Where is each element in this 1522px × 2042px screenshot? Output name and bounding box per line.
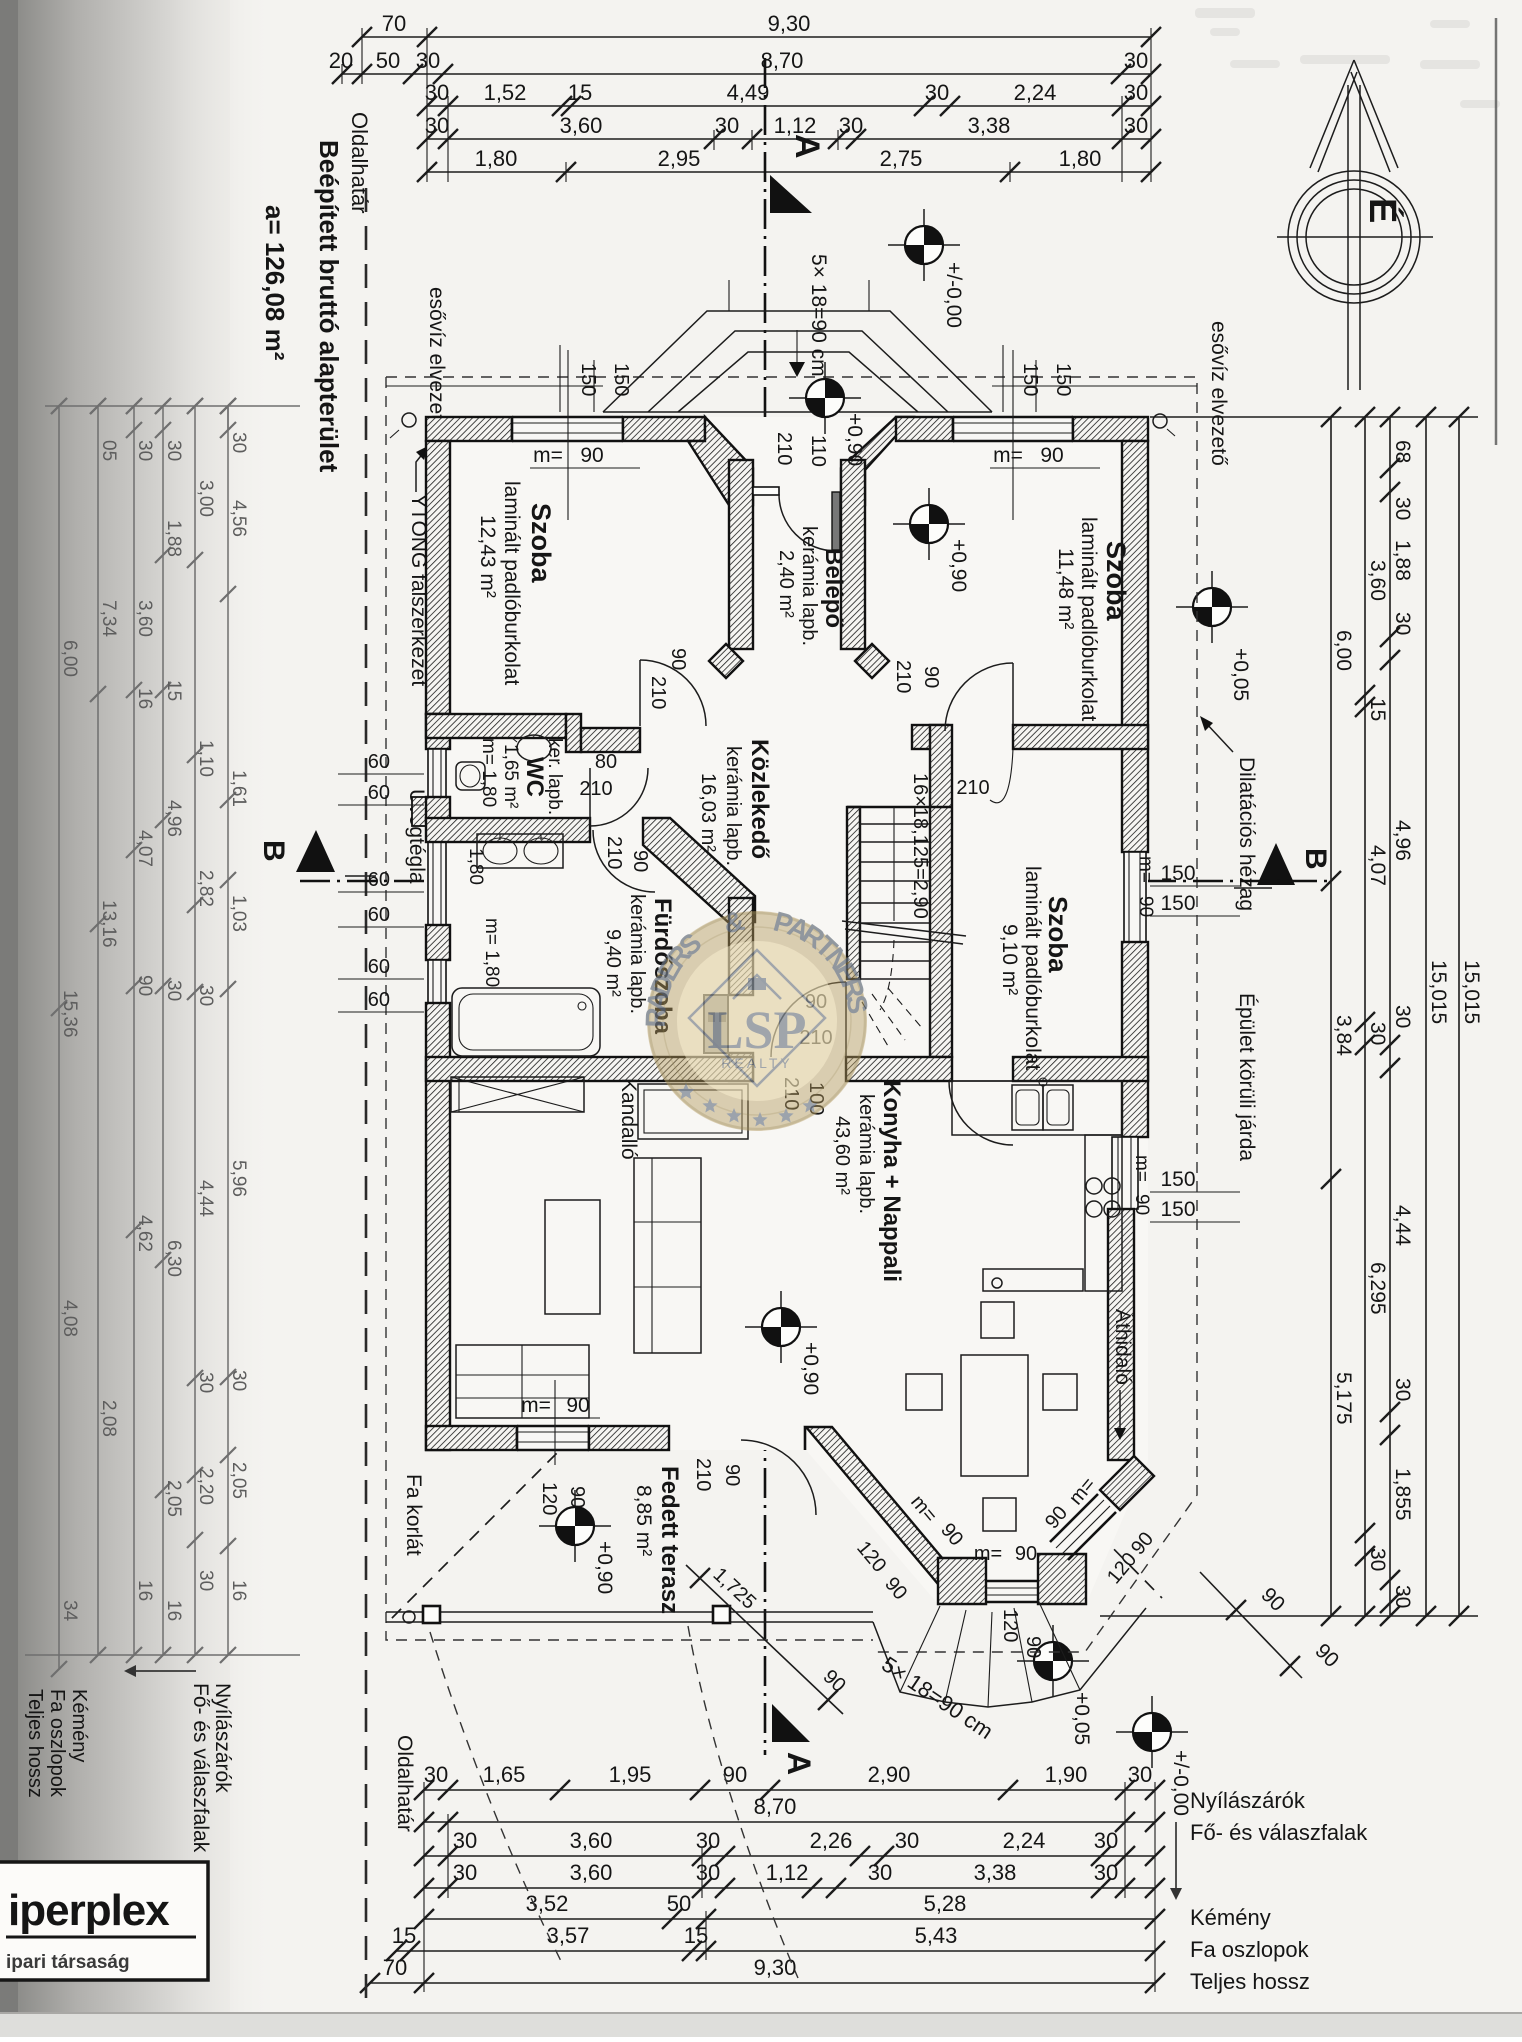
svg-text:20: 20 [329, 48, 353, 73]
svg-text:60: 60 [368, 751, 390, 773]
svg-text:150: 150 [1019, 363, 1041, 396]
svg-text:kerámia lapb.: kerámia lapb. [855, 1094, 877, 1214]
svg-text:Oldalhatár: Oldalhatár [393, 1735, 416, 1832]
svg-text:+/-0,00: +/-0,00 [942, 262, 965, 328]
svg-text:15: 15 [1366, 698, 1389, 721]
svg-text:B: B [1299, 848, 1332, 870]
svg-text:90: 90 [1022, 1636, 1044, 1658]
svg-text:13,16: 13,16 [98, 900, 119, 948]
svg-text:m= 1,80: m= 1,80 [481, 918, 502, 987]
svg-text:Szoba: Szoba [1043, 896, 1073, 973]
svg-text:8,85 m²: 8,85 m² [632, 1485, 655, 1556]
svg-text:30: 30 [1391, 1585, 1414, 1608]
svg-text:3,38: 3,38 [968, 113, 1011, 138]
svg-text:REALTY: REALTY [721, 1055, 792, 1071]
svg-text:16: 16 [163, 1600, 184, 1621]
svg-text:16,03 m²: 16,03 m² [697, 773, 719, 852]
svg-text:1,80: 1,80 [465, 848, 486, 885]
svg-text:4,07: 4,07 [1366, 845, 1389, 886]
svg-text:3,38: 3,38 [974, 1860, 1017, 1885]
svg-text:60: 60 [368, 989, 390, 1011]
svg-text:laminált padlóburkolat: laminált padlóburkolat [500, 481, 523, 685]
svg-text:Nyílászárók: Nyílászárók [211, 1683, 234, 1793]
svg-text:30: 30 [228, 1370, 249, 1391]
svg-text:15: 15 [392, 1923, 416, 1948]
svg-text:15: 15 [163, 680, 184, 701]
svg-text:150: 150 [610, 363, 632, 396]
svg-text:30: 30 [1124, 113, 1148, 138]
svg-text:Épület körüli járda: Épület körüli járda [1235, 993, 1258, 1161]
svg-text:3,52: 3,52 [526, 1891, 569, 1916]
svg-text:30: 30 [195, 1570, 216, 1591]
svg-text:30: 30 [868, 1860, 892, 1885]
svg-text:70: 70 [382, 11, 406, 36]
svg-text:30: 30 [228, 432, 249, 453]
svg-text:4,07: 4,07 [134, 830, 155, 867]
svg-text:5,96: 5,96 [228, 1160, 249, 1197]
svg-text:2,05: 2,05 [228, 1462, 249, 1499]
svg-text:4,44: 4,44 [195, 1180, 216, 1217]
svg-text:1,90: 1,90 [1045, 1762, 1088, 1787]
svg-text:WC: WC [521, 757, 548, 797]
svg-text:30: 30 [1094, 1860, 1118, 1885]
svg-text:+0,90: +0,90 [947, 539, 970, 592]
svg-text:laminált padlóburkolat: laminált padlóburkolat [1021, 866, 1044, 1070]
svg-text:5,28: 5,28 [924, 1891, 967, 1916]
svg-text:4,56: 4,56 [228, 500, 249, 537]
svg-text:210: 210 [892, 660, 914, 693]
svg-text:110: 110 [807, 435, 829, 467]
svg-text:Kémény: Kémény [68, 1689, 90, 1762]
svg-text:30: 30 [1391, 497, 1414, 520]
svg-text:Szoba: Szoba [526, 503, 556, 583]
svg-text:3,00: 3,00 [195, 480, 216, 517]
svg-text:90: 90 [566, 1394, 589, 1417]
svg-text:150: 150 [1160, 892, 1195, 915]
svg-text:LSP: LSP [707, 1000, 806, 1060]
svg-text:6,00: 6,00 [59, 640, 80, 677]
svg-text:210: 210 [647, 676, 669, 709]
svg-text:Fedett terasz: Fedett terasz [656, 1466, 683, 1614]
svg-text:30: 30 [1391, 1005, 1414, 1028]
svg-text:2,40 m²: 2,40 m² [775, 550, 797, 618]
svg-text:60: 60 [368, 956, 390, 978]
svg-text:210: 210 [579, 778, 612, 800]
svg-text:30: 30 [696, 1860, 720, 1885]
svg-text:30: 30 [453, 1828, 477, 1853]
svg-text:90: 90 [1131, 1194, 1152, 1215]
svg-text:É: É [1361, 198, 1405, 223]
svg-text:30: 30 [453, 1860, 477, 1885]
svg-text:6,295: 6,295 [1366, 1262, 1389, 1315]
svg-text:16: 16 [228, 1580, 249, 1601]
svg-text:30: 30 [425, 80, 449, 105]
svg-text:30: 30 [163, 980, 184, 1001]
svg-text:90: 90 [1015, 1543, 1037, 1565]
svg-text:60: 60 [368, 869, 390, 891]
svg-text:90: 90 [920, 666, 942, 688]
svg-text:Fa oszlopok: Fa oszlopok [46, 1689, 68, 1798]
svg-text:4,08: 4,08 [59, 1300, 80, 1337]
svg-text:30: 30 [416, 48, 440, 73]
svg-text:8,70: 8,70 [761, 48, 804, 73]
svg-text:30: 30 [1366, 1022, 1389, 1045]
svg-text:9,10 m²: 9,10 m² [998, 924, 1021, 995]
svg-text:m=: m= [533, 444, 563, 467]
svg-text:m=: m= [974, 1543, 1002, 1565]
svg-text:1,80: 1,80 [1059, 146, 1102, 171]
svg-text:1,65: 1,65 [483, 1762, 526, 1787]
svg-text:15: 15 [568, 80, 592, 105]
svg-text:1,12: 1,12 [766, 1860, 809, 1885]
svg-text:90: 90 [580, 444, 603, 467]
svg-text:Teljes hossz: Teljes hossz [1190, 1969, 1310, 1994]
svg-text:3,60: 3,60 [1366, 560, 1389, 601]
svg-text:+0,90: +0,90 [593, 1541, 616, 1594]
svg-text:16×18,125=2,90: 16×18,125=2,90 [909, 773, 931, 919]
svg-text:30: 30 [715, 113, 739, 138]
svg-text:1,80: 1,80 [475, 146, 518, 171]
svg-text:Kémény: Kémény [1190, 1905, 1271, 1930]
svg-text:30: 30 [163, 440, 184, 461]
svg-text:210: 210 [692, 1458, 714, 1491]
svg-text:90: 90 [721, 1464, 743, 1486]
svg-text:2,95: 2,95 [658, 146, 701, 171]
svg-text:Kandalló: Kandalló [617, 1078, 640, 1160]
svg-text:30: 30 [696, 1828, 720, 1853]
svg-text:m=: m= [1135, 856, 1156, 883]
svg-text:Beépített bruttó alapterület: Beépített bruttó alapterület [314, 140, 344, 473]
svg-text:A: A [788, 134, 826, 159]
svg-text:Fő- és válaszfalak: Fő- és válaszfalak [1190, 1820, 1368, 1845]
svg-text:9,40 m²: 9,40 m² [602, 929, 624, 997]
svg-text:30: 30 [195, 1372, 216, 1393]
svg-text:120: 120 [999, 1609, 1021, 1642]
svg-text:90: 90 [629, 850, 651, 872]
svg-text:esővíz elvezető: esővíz elvezető [1207, 321, 1230, 466]
svg-text:1,95: 1,95 [609, 1762, 652, 1787]
svg-text:4,96: 4,96 [1391, 820, 1414, 861]
svg-text:12,43 m²: 12,43 m² [476, 515, 499, 598]
svg-text:3,60: 3,60 [560, 113, 603, 138]
svg-text:2,26: 2,26 [810, 1828, 853, 1853]
svg-text:4,62: 4,62 [134, 1215, 155, 1252]
svg-text:2,05: 2,05 [163, 1480, 184, 1517]
svg-text:210: 210 [603, 836, 625, 869]
svg-text:210: 210 [773, 432, 795, 465]
svg-text:ipari társaság: ipari társaság [6, 1952, 130, 1973]
svg-text:1,65 m²: 1,65 m² [500, 744, 521, 808]
svg-text:Áthidaló: Áthidaló [1111, 1309, 1134, 1385]
svg-text:2,08: 2,08 [98, 1400, 119, 1437]
svg-text:43,60 m²: 43,60 m² [831, 1116, 853, 1195]
svg-text:+0,05: +0,05 [1229, 648, 1252, 701]
svg-text:1,855: 1,855 [1391, 1468, 1414, 1521]
svg-text:30: 30 [424, 1762, 448, 1787]
svg-text:05: 05 [98, 440, 119, 461]
svg-text:150: 150 [577, 363, 599, 396]
svg-text:2,24: 2,24 [1003, 1828, 1046, 1853]
svg-text:6,30: 6,30 [163, 1240, 184, 1277]
svg-text:1,10: 1,10 [195, 740, 216, 777]
svg-text:+/-0,00: +/-0,00 [1169, 1750, 1192, 1816]
svg-text:2,20: 2,20 [195, 1468, 216, 1505]
svg-text:30: 30 [1391, 612, 1414, 635]
svg-text:5,175: 5,175 [1332, 1372, 1355, 1425]
svg-text:m=: m= [521, 1394, 551, 1417]
svg-text:15,015: 15,015 [1460, 960, 1483, 1024]
svg-text:30: 30 [425, 113, 449, 138]
svg-text:15,015: 15,015 [1427, 960, 1450, 1024]
svg-text:30: 30 [839, 113, 863, 138]
svg-text:30: 30 [1391, 1378, 1414, 1401]
svg-text:30: 30 [1366, 1548, 1389, 1571]
svg-text:30: 30 [925, 80, 949, 105]
svg-text:2,75: 2,75 [880, 146, 923, 171]
svg-text:30: 30 [1094, 1828, 1118, 1853]
svg-text:Közlekedő: Közlekedő [746, 739, 773, 859]
svg-text:11,48 m²: 11,48 m² [1054, 548, 1077, 629]
svg-text:Fa korlát: Fa korlát [402, 1474, 425, 1556]
svg-text:Oldalhatár: Oldalhatár [347, 112, 372, 214]
svg-text:kerámia lapb.: kerámia lapb. [798, 526, 820, 646]
svg-text:1,03: 1,03 [228, 895, 249, 932]
svg-text:7,34: 7,34 [98, 600, 119, 637]
svg-text:+0,05: +0,05 [1070, 1692, 1093, 1745]
svg-text:3,60: 3,60 [134, 600, 155, 637]
svg-text:A: A [781, 1752, 817, 1775]
svg-text:90: 90 [1135, 896, 1156, 917]
svg-text:Fa oszlopok: Fa oszlopok [1190, 1937, 1310, 1962]
svg-text:15: 15 [684, 1923, 708, 1948]
svg-text:Belépő: Belépő [820, 548, 847, 628]
svg-text:30: 30 [1124, 48, 1148, 73]
svg-text:8,70: 8,70 [754, 1794, 797, 1819]
svg-text:5× 18=90 cm: 5× 18=90 cm [807, 254, 830, 377]
svg-text:150: 150 [1052, 363, 1074, 396]
svg-text:Szoba: Szoba [1101, 541, 1131, 621]
svg-text:4,96: 4,96 [163, 800, 184, 837]
svg-text:30: 30 [1128, 1762, 1152, 1787]
svg-text:B: B [257, 840, 290, 862]
svg-text:90: 90 [1040, 444, 1063, 467]
svg-text:34: 34 [59, 1600, 80, 1622]
svg-text:3,60: 3,60 [570, 1828, 613, 1853]
svg-text:90: 90 [667, 648, 689, 670]
svg-text:90: 90 [566, 1486, 588, 1508]
svg-text:m=: m= [1131, 1155, 1152, 1182]
svg-text:esővíz elvezető: esővíz elvezető [425, 287, 448, 432]
svg-text:1,88: 1,88 [163, 520, 184, 557]
svg-text:laminált padlóburkolat: laminált padlóburkolat [1077, 517, 1100, 721]
svg-text:6,00: 6,00 [1332, 630, 1355, 671]
svg-text:Teljes hossz: Teljes hossz [24, 1689, 46, 1798]
svg-text:60: 60 [368, 782, 390, 804]
svg-text:50: 50 [667, 1891, 691, 1916]
svg-text:Fő- és válaszfalak: Fő- és válaszfalak [189, 1683, 212, 1853]
svg-text:15,36: 15,36 [59, 990, 80, 1038]
svg-text:30: 30 [1124, 80, 1148, 105]
svg-text:4,44: 4,44 [1391, 1205, 1414, 1246]
svg-text:68: 68 [1391, 440, 1414, 463]
svg-text:kerámia lapb.: kerámia lapb. [722, 746, 744, 866]
svg-text:1,52: 1,52 [484, 80, 527, 105]
svg-text:16: 16 [134, 688, 155, 709]
svg-text:3,60: 3,60 [570, 1860, 613, 1885]
svg-text:Dilatációs hézag: Dilatációs hézag [1235, 757, 1258, 911]
svg-text:m= 1,80: m= 1,80 [478, 738, 499, 807]
svg-text:iperplex: iperplex [8, 1886, 170, 1935]
svg-text:210: 210 [956, 777, 989, 799]
svg-text:+0,90: +0,90 [843, 413, 866, 466]
svg-text:16: 16 [134, 1580, 155, 1601]
svg-text:3,84: 3,84 [1332, 1015, 1355, 1056]
svg-text:90: 90 [134, 975, 155, 996]
svg-text:70: 70 [383, 1955, 407, 1980]
svg-text:9,30: 9,30 [768, 11, 811, 36]
svg-text:120: 120 [538, 1482, 560, 1515]
svg-text:150: 150 [1160, 1198, 1195, 1221]
svg-text:80: 80 [595, 751, 617, 773]
svg-text:2,82: 2,82 [195, 870, 216, 907]
svg-text:30: 30 [195, 985, 216, 1006]
svg-text:Konyha + Nappali: Konyha + Nappali [878, 1080, 905, 1282]
svg-text:2,24: 2,24 [1014, 80, 1057, 105]
svg-text:Nyílászárók: Nyílászárók [1190, 1788, 1306, 1813]
svg-text:60: 60 [368, 904, 390, 926]
svg-text:1,61: 1,61 [228, 770, 249, 807]
svg-text:1,88: 1,88 [1391, 540, 1414, 581]
svg-text:3,57: 3,57 [547, 1923, 590, 1948]
svg-text:50: 50 [376, 48, 400, 73]
svg-text:+0,90: +0,90 [799, 1342, 822, 1395]
svg-text:2,90: 2,90 [868, 1762, 911, 1787]
svg-text:30: 30 [895, 1828, 919, 1853]
svg-text:30: 30 [134, 440, 155, 461]
svg-text:4,49: 4,49 [727, 80, 770, 105]
svg-text:m=: m= [993, 444, 1023, 467]
svg-text:5,43: 5,43 [915, 1923, 958, 1948]
svg-text:150: 150 [1160, 1168, 1195, 1191]
svg-text:a= 126,08 m²: a= 126,08 m² [260, 205, 290, 361]
